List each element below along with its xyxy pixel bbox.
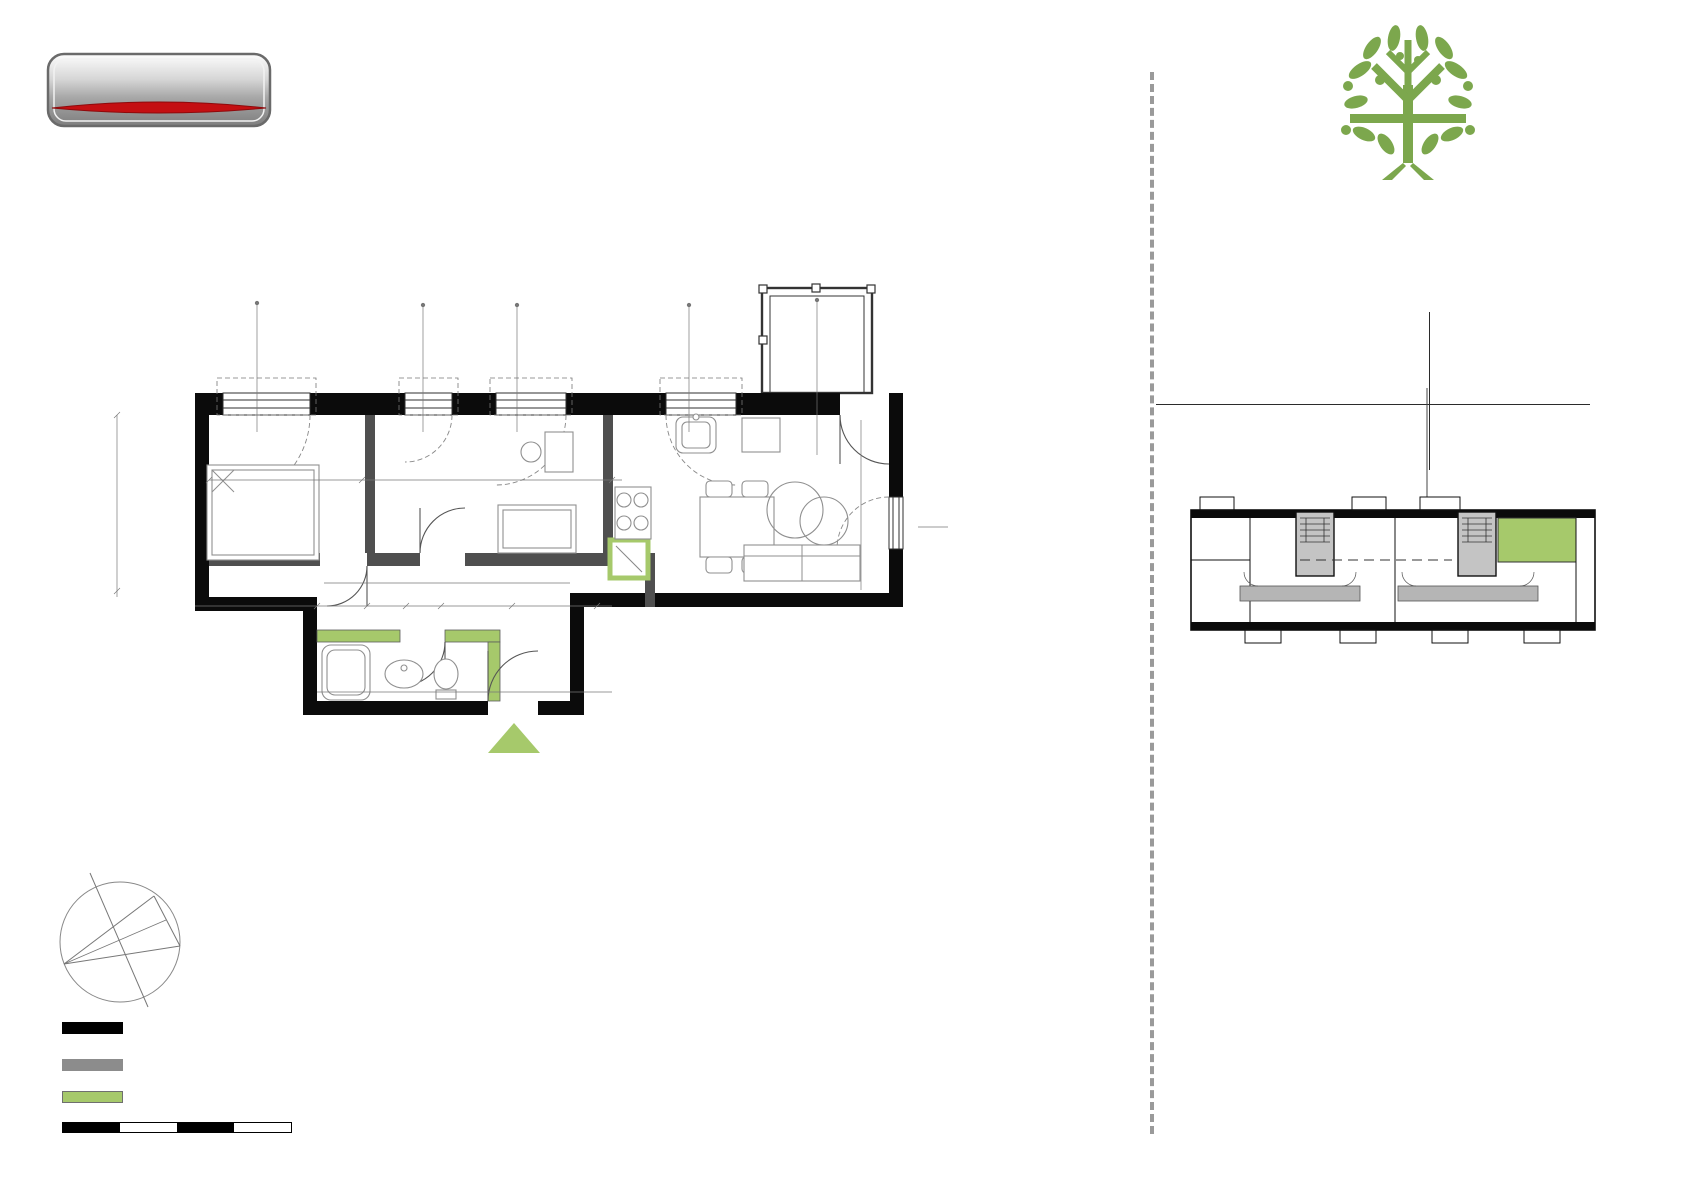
entrance-arrow [488,723,540,753]
centrum-zana-logo [46,52,272,128]
bathtub [322,645,370,700]
building-key-plan [1191,388,1595,643]
toilet [434,659,458,699]
vector-graphics [0,0,1683,1190]
sofa [744,545,860,581]
internal-green-walls [317,540,648,701]
window-room4 [217,378,316,415]
kitchen-sink [676,414,716,453]
doors [327,415,889,701]
kitchen-stove [615,487,651,539]
scale-bar [62,1122,292,1133]
balcony [759,284,875,393]
room-schedule [1191,708,1593,724]
legend-swatch-internal-wall [62,1091,123,1103]
details-divider-v [1429,312,1430,470]
north-compass [60,873,180,1007]
legend-swatch-demountable-wall [62,1059,123,1071]
details-divider-h [1156,404,1590,405]
stairwell-1 [1296,512,1334,576]
demountable-label [1191,958,1498,983]
bed-room4 [207,465,319,560]
external-walls [195,393,903,715]
windows [217,378,903,549]
snopkow-tree-logo [1341,24,1475,180]
stairwell-2 [1458,512,1496,576]
pouf-circles [767,482,848,545]
dimension-lines [114,298,948,692]
internal-demountable-walls [209,415,655,607]
dining-table [700,481,774,573]
demountable-value [1498,958,1593,983]
window-room3 [399,378,458,415]
window-room3b [490,378,572,415]
highlighted-unit [1498,518,1576,562]
panel-separator [1150,72,1154,1134]
floorplan-sheet [0,0,1683,1190]
window-swings [223,415,889,549]
furniture [207,414,860,700]
window-kitchen [660,378,742,415]
legend-swatch-external-wall [62,1022,123,1034]
notes [400,1032,1040,1034]
floor-plan [114,284,948,753]
desk-room3 [521,432,573,472]
bed-room3 [498,505,576,553]
window-salon-east [889,497,903,549]
washbasin [385,660,423,688]
demountable-area [1191,958,1593,983]
fridge [742,418,780,452]
